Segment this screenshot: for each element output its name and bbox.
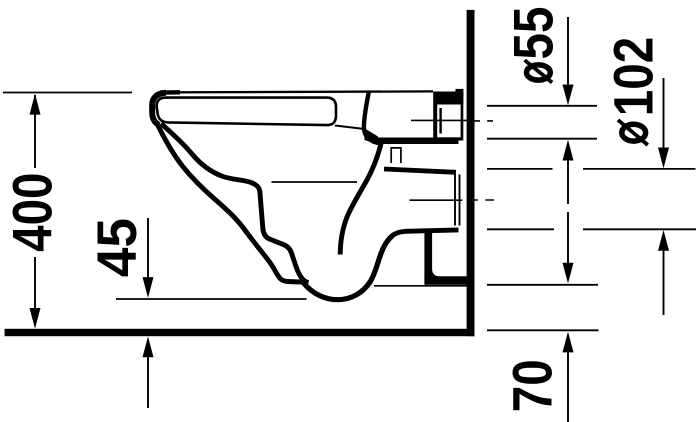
svg-text:70: 70 (502, 359, 564, 412)
svg-text:45: 45 (86, 218, 149, 277)
svg-text:55: 55 (503, 7, 565, 60)
svg-text:102: 102 (603, 37, 665, 116)
svg-text:400: 400 (2, 173, 64, 252)
